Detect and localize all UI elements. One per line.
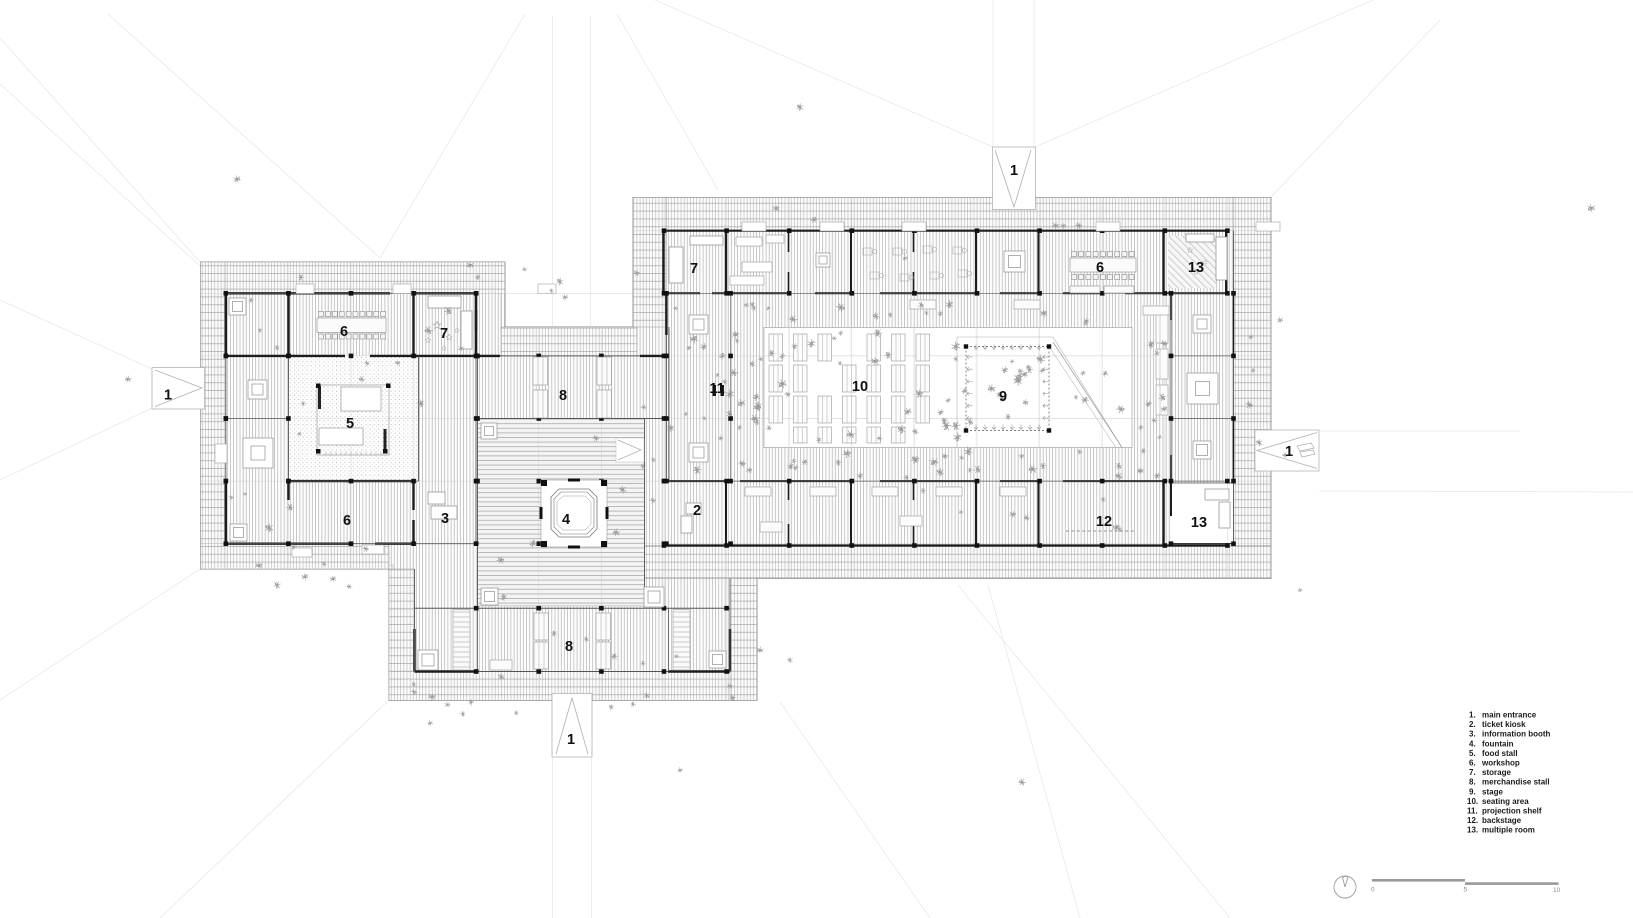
svg-text:information booth: information booth [1482,730,1551,739]
svg-text:projection shelf: projection shelf [1482,807,1542,816]
svg-text:3.: 3. [1469,730,1476,739]
svg-text:5: 5 [346,416,354,432]
svg-text:2: 2 [693,503,701,519]
svg-text:1.: 1. [1469,711,1476,720]
svg-text:4: 4 [562,512,570,528]
svg-text:11.: 11. [1467,807,1478,816]
svg-text:6.: 6. [1469,759,1476,768]
svg-text:backstage: backstage [1482,816,1522,825]
svg-text:9: 9 [999,389,1007,405]
svg-text:seating area: seating area [1482,797,1529,806]
svg-text:storage: storage [1482,768,1511,777]
svg-text:13: 13 [1188,260,1204,276]
svg-text:10: 10 [852,379,868,395]
svg-text:1: 1 [164,388,172,404]
svg-text:8: 8 [559,388,567,404]
svg-text:5: 5 [1464,887,1468,894]
svg-text:fountain: fountain [1482,739,1514,748]
svg-text:stage: stage [1482,787,1503,796]
svg-text:8.: 8. [1469,778,1476,787]
svg-text:main entrance: main entrance [1482,711,1537,720]
svg-text:9.: 9. [1469,787,1476,796]
svg-text:12: 12 [1096,514,1112,530]
svg-text:6: 6 [1096,260,1104,276]
svg-text:food stall: food stall [1482,749,1518,758]
svg-text:7: 7 [440,326,448,342]
svg-text:workshop: workshop [1481,759,1520,768]
svg-text:1: 1 [1010,163,1018,179]
svg-text:6: 6 [340,324,348,340]
svg-text:0: 0 [1371,887,1375,894]
svg-text:1: 1 [1285,444,1293,460]
svg-text:3: 3 [441,511,449,527]
svg-text:5.: 5. [1469,749,1476,758]
svg-text:13: 13 [1191,515,1207,531]
svg-text:4.: 4. [1469,739,1476,748]
svg-text:7.: 7. [1469,768,1476,777]
svg-text:10: 10 [1553,887,1561,894]
svg-text:merchandise stall: merchandise stall [1482,778,1550,787]
svg-text:7: 7 [690,261,698,277]
svg-text:10.: 10. [1467,797,1478,806]
svg-text:1: 1 [567,732,575,748]
svg-text:multiple room: multiple room [1482,826,1535,835]
svg-text:13.: 13. [1467,826,1478,835]
svg-text:12.: 12. [1467,816,1478,825]
svg-text:6: 6 [343,513,351,529]
svg-text:8: 8 [565,639,573,655]
svg-text:ticket kiosk: ticket kiosk [1482,720,1526,729]
svg-text:2.: 2. [1469,720,1476,729]
svg-text:11: 11 [709,381,724,397]
